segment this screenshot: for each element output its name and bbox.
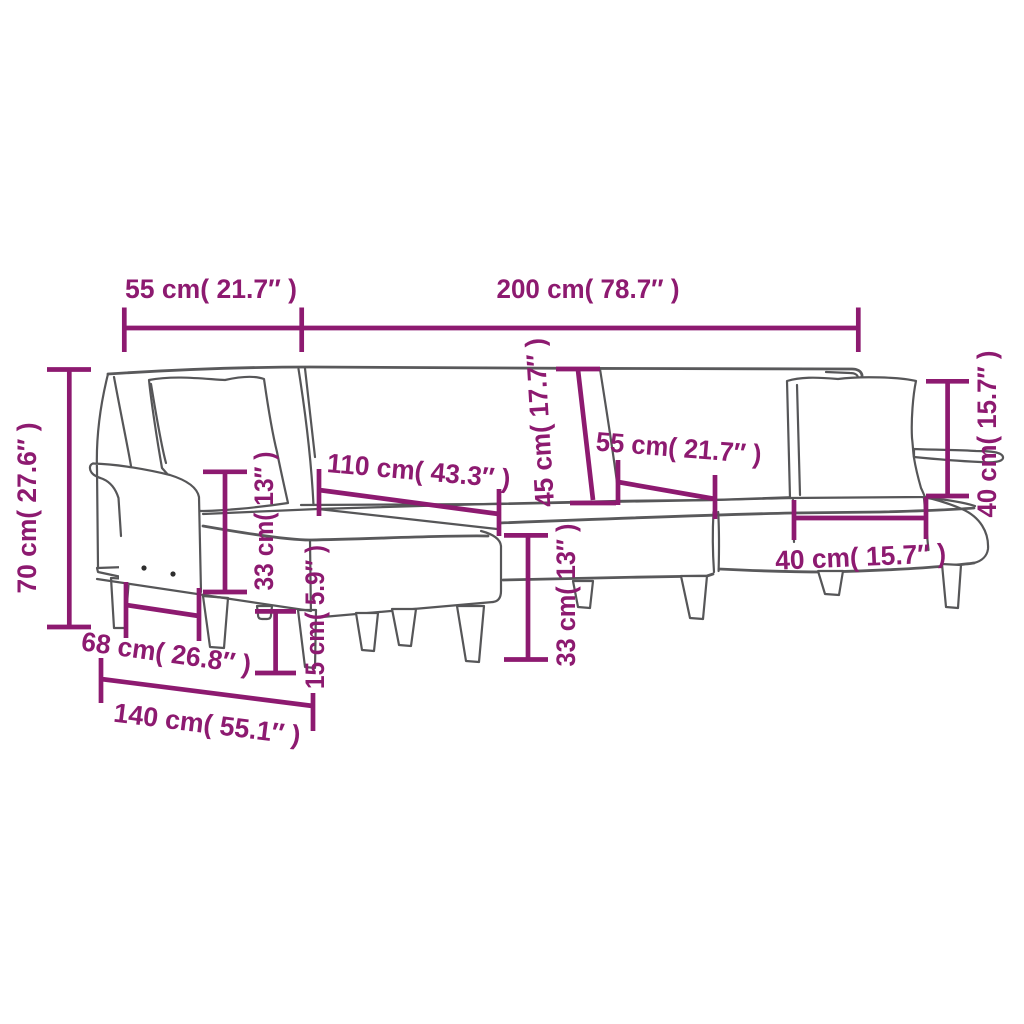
svg-text:70 cm( 27.6″ ): 70 cm( 27.6″ ) — [12, 423, 42, 594]
svg-text:15 cm( 5.9″ ): 15 cm( 5.9″ ) — [300, 545, 330, 689]
svg-text:33 cm( 13″ ): 33 cm( 13″ ) — [249, 452, 279, 591]
svg-text:33 cm( 13″ ): 33 cm( 13″ ) — [551, 524, 581, 667]
svg-text:55 cm( 21.7″ ): 55 cm( 21.7″ ) — [125, 274, 297, 304]
svg-text:200 cm( 78.7″ ): 200 cm( 78.7″ ) — [497, 274, 680, 304]
svg-text:40 cm( 15.7″ ): 40 cm( 15.7″ ) — [972, 351, 1002, 518]
